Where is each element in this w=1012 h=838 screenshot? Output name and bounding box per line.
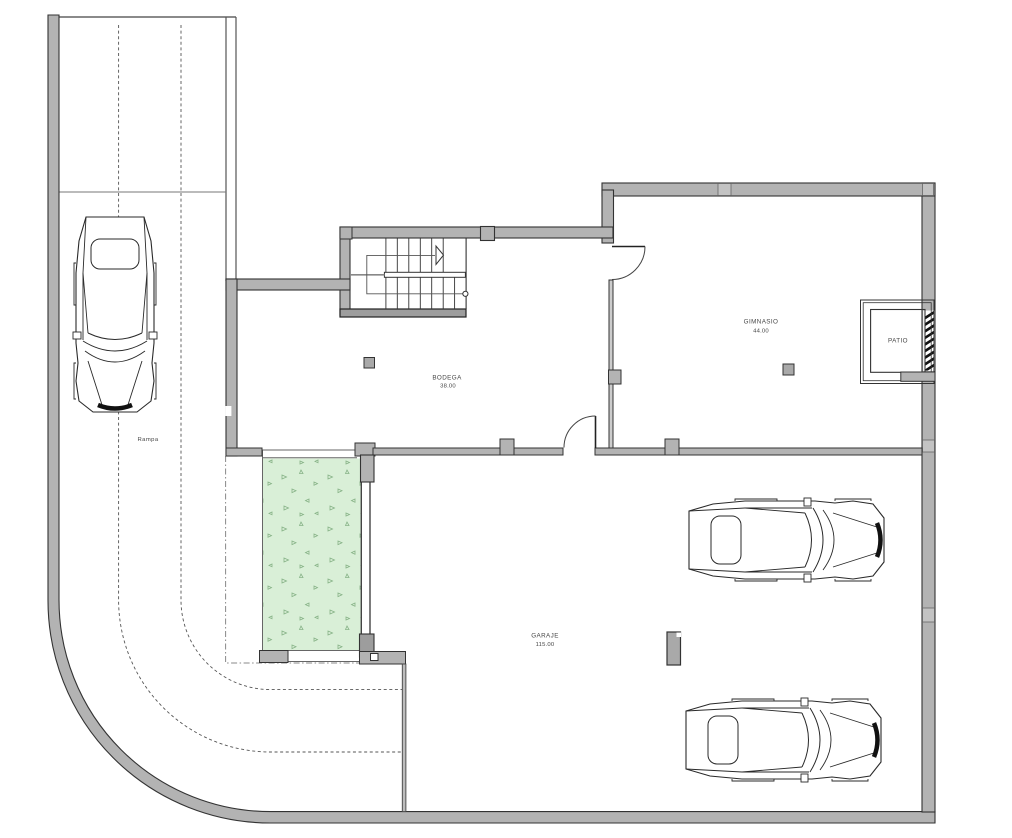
svg-text:44.00: 44.00 [753,329,769,335]
svg-text:BODEGA: BODEGA [432,375,462,382]
svg-text:GARAJE: GARAJE [531,633,559,640]
svg-text:115.00: 115.00 [536,642,555,648]
svg-text:38.00: 38.00 [440,384,456,390]
svg-text:Rampa: Rampa [138,437,159,443]
svg-text:GIMNASIO: GIMNASIO [744,319,779,326]
svg-text:PATIO: PATIO [888,338,908,345]
